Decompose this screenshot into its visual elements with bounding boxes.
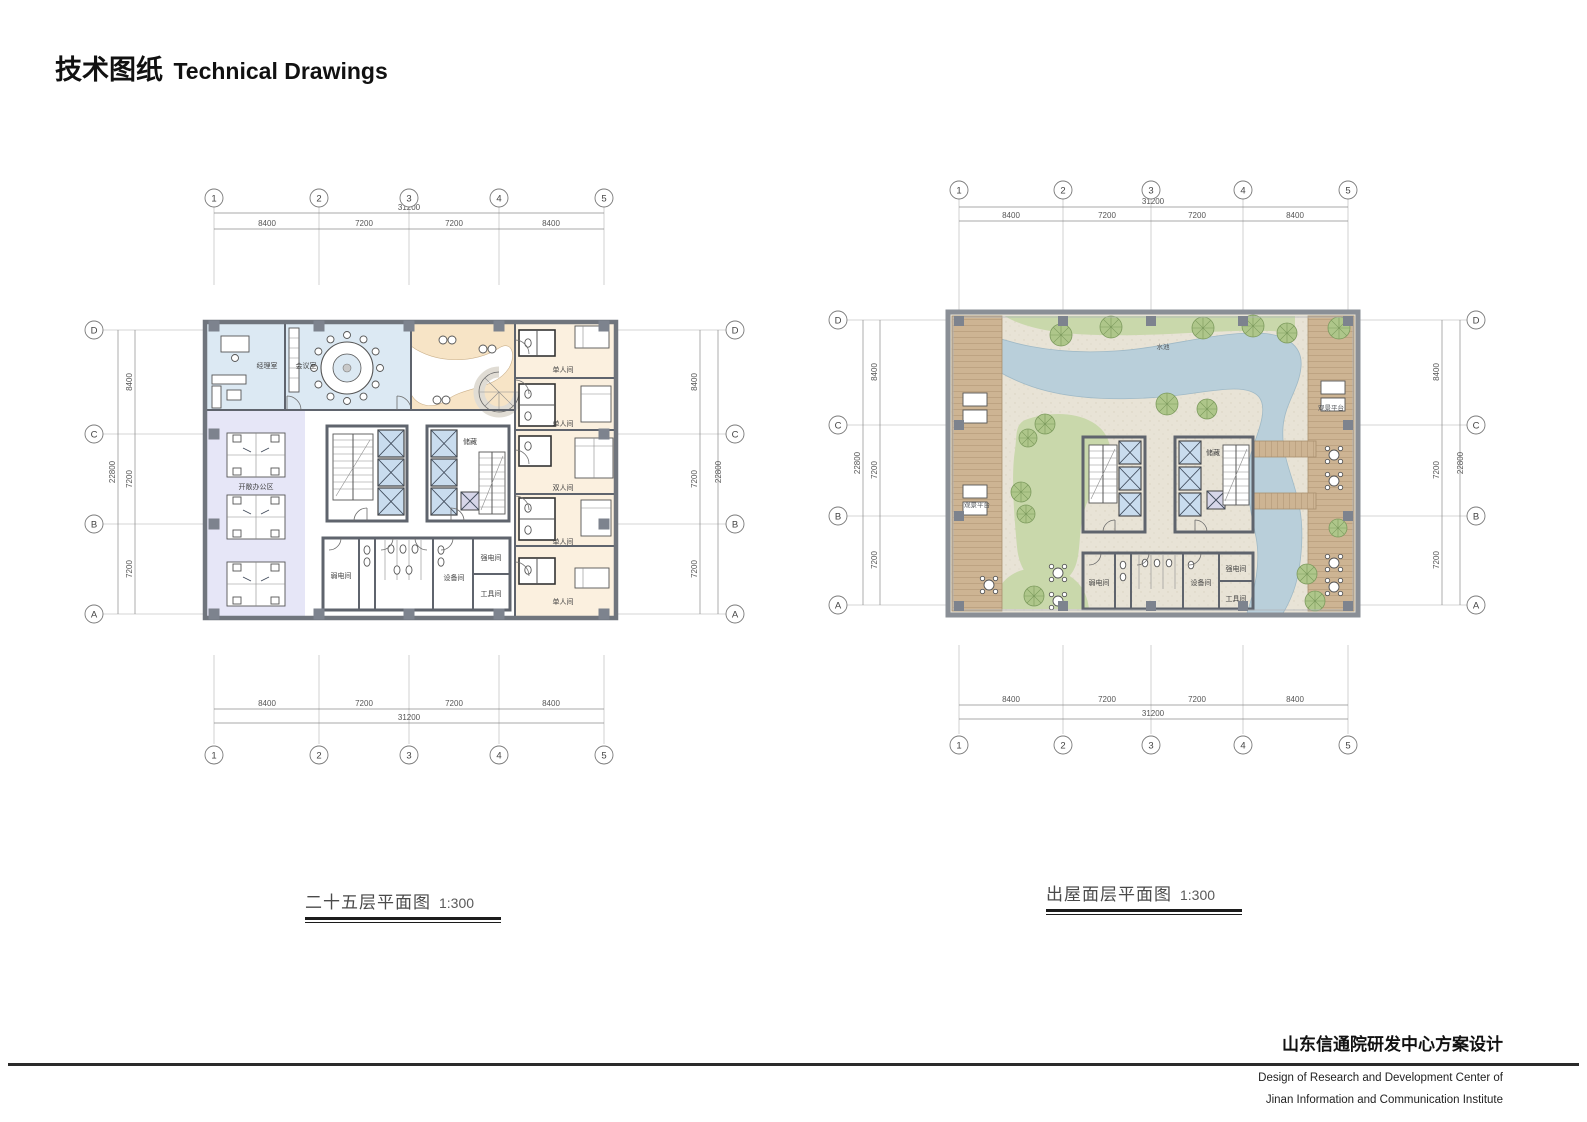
- svg-text:7200: 7200: [1432, 551, 1441, 569]
- label-tool: 工具间: [481, 590, 502, 598]
- workstation-cluster: [227, 495, 285, 539]
- svg-text:22800: 22800: [714, 460, 723, 483]
- svg-text:7200: 7200: [125, 470, 134, 488]
- svg-text:3: 3: [406, 194, 411, 205]
- svg-text:3: 3: [1148, 186, 1153, 197]
- roof-grid-top: 31200 8400 7200 7200 8400 1 2 3 4 5: [950, 181, 1357, 310]
- svg-text:8400: 8400: [1432, 363, 1441, 381]
- caption-underline: [305, 917, 501, 920]
- svg-text:4: 4: [1240, 186, 1245, 197]
- svg-text:2: 2: [1060, 741, 1065, 752]
- floor25-grid-top: 31200 8400 7200 7200 8400 1 2 3 4 5: [205, 189, 613, 285]
- svg-text:7200: 7200: [125, 560, 134, 578]
- svg-text:7200: 7200: [355, 699, 373, 708]
- caption-roof: 出屋面层平面图1:300: [1046, 880, 1242, 915]
- svg-text:C: C: [91, 430, 98, 441]
- svg-text:7200: 7200: [445, 219, 463, 228]
- svg-text:A: A: [1473, 601, 1480, 612]
- svg-text:3: 3: [1148, 741, 1153, 752]
- svg-text:D: D: [91, 326, 98, 337]
- svg-text:8400: 8400: [1002, 695, 1020, 704]
- label-manager: 经理室: [257, 361, 278, 370]
- caption-underline-thin: [1046, 914, 1242, 915]
- svg-text:7200: 7200: [445, 699, 463, 708]
- project-title-zh: 山东信通院研发中心方案设计: [1282, 1030, 1503, 1055]
- label-single-room: 单人间: [553, 365, 574, 374]
- svg-text:31200: 31200: [398, 713, 421, 722]
- svg-text:2: 2: [316, 751, 321, 762]
- label-roof-equipment: 设备间: [1191, 578, 1212, 587]
- svg-text:7200: 7200: [870, 551, 879, 569]
- svg-text:8400: 8400: [690, 373, 699, 391]
- elevator-icon: [1119, 441, 1141, 516]
- svg-text:5: 5: [601, 194, 606, 205]
- label-meeting: 会议室: [296, 361, 317, 370]
- svg-text:8400: 8400: [542, 219, 560, 228]
- svg-text:7200: 7200: [1188, 211, 1206, 220]
- label-deck-left: 观景平台: [964, 500, 990, 509]
- roof-grid-left: 22800 8400 7200 7200 D C B A: [829, 311, 948, 614]
- svg-text:1: 1: [211, 194, 216, 205]
- project-title-en-line2: Jinan Information and Communication Inst…: [1266, 1094, 1503, 1106]
- caption-roof-scale: 1:300: [1180, 887, 1215, 903]
- stair-icon: [333, 434, 373, 500]
- roof-plan: 31200 8400 7200 7200 8400 1 2 3 4 5 8400…: [815, 175, 1515, 770]
- page-title: 技术图纸 Technical Drawings: [55, 48, 388, 87]
- roof-grid-right: 8400 7200 7200 22800 D C B A: [1358, 311, 1485, 614]
- svg-text:A: A: [835, 601, 842, 612]
- elevator-icon: [1207, 491, 1225, 509]
- svg-text:5: 5: [1345, 186, 1350, 197]
- label-storage: 储藏: [463, 437, 477, 446]
- svg-text:8400: 8400: [1286, 211, 1304, 220]
- svg-text:C: C: [835, 421, 842, 432]
- drawing-sheet: 技术图纸 Technical Drawings 31200 8400 7200 …: [0, 0, 1587, 1122]
- svg-text:4: 4: [496, 751, 501, 762]
- svg-text:2: 2: [316, 194, 321, 205]
- project-title-en-line1: Design of Research and Development Cente…: [1258, 1072, 1503, 1084]
- caption-floor25-title: 二十五层平面图: [305, 893, 431, 912]
- svg-text:D: D: [732, 326, 739, 337]
- label-roof-weak-power: 弱电间: [1089, 578, 1110, 587]
- deck-left: [952, 316, 1002, 611]
- stair-icon: [479, 452, 505, 514]
- deck-bridge: [1252, 493, 1316, 509]
- svg-text:7200: 7200: [870, 461, 879, 479]
- svg-text:5: 5: [1345, 741, 1350, 752]
- elevator-icon: [461, 492, 479, 510]
- svg-text:8400: 8400: [542, 699, 560, 708]
- svg-text:22800: 22800: [1456, 451, 1465, 474]
- svg-text:A: A: [91, 610, 98, 621]
- svg-text:A: A: [732, 610, 739, 621]
- svg-text:2: 2: [1060, 186, 1065, 197]
- svg-text:1: 1: [956, 186, 961, 197]
- svg-text:5: 5: [601, 751, 606, 762]
- floor25-grid-bottom: 8400 7200 7200 8400 31200 1 2 3 4 5: [205, 655, 613, 764]
- svg-text:8400: 8400: [125, 373, 134, 391]
- label-single-room: 单人间: [553, 537, 574, 546]
- svg-text:7200: 7200: [1098, 211, 1116, 220]
- elevator-icon: [378, 430, 404, 515]
- elevator-icon: [1179, 441, 1201, 516]
- roof-grid-bottom: 8400 7200 7200 8400 31200 1 2 3 4 5: [950, 645, 1357, 754]
- caption-floor25-scale: 1:300: [439, 895, 474, 911]
- footer-rule: [8, 1063, 1579, 1066]
- svg-text:8400: 8400: [1002, 211, 1020, 220]
- svg-text:C: C: [1473, 421, 1480, 432]
- label-equipment: 设备间: [444, 573, 465, 582]
- svg-text:31200: 31200: [1142, 709, 1165, 718]
- label-open-office: 开敞办公区: [239, 482, 274, 491]
- svg-text:8400: 8400: [870, 363, 879, 381]
- deck-bridge: [1252, 441, 1316, 457]
- page-title-zh: 技术图纸: [55, 55, 163, 85]
- svg-text:7200: 7200: [1188, 695, 1206, 704]
- svg-text:8400: 8400: [258, 699, 276, 708]
- floor25-grid-left: 22800 8400 7200 7200 D C B A: [85, 321, 203, 623]
- label-water: 水池: [1157, 342, 1171, 351]
- caption-floor25: 二十五层平面图1:300: [305, 888, 501, 923]
- svg-text:7200: 7200: [1432, 461, 1441, 479]
- label-single-room: 单人间: [553, 597, 574, 606]
- svg-text:22800: 22800: [853, 451, 862, 474]
- svg-text:8400: 8400: [1286, 695, 1304, 704]
- svg-text:22800: 22800: [108, 460, 117, 483]
- svg-text:7200: 7200: [355, 219, 373, 228]
- stair-icon: [1089, 445, 1117, 503]
- stair-icon: [1223, 445, 1249, 505]
- svg-text:D: D: [835, 316, 842, 327]
- svg-text:4: 4: [496, 194, 501, 205]
- svg-text:7200: 7200: [690, 470, 699, 488]
- svg-text:D: D: [1473, 316, 1480, 327]
- floor25-grid-right: 8400 7200 7200 22800 D C B A: [618, 321, 744, 623]
- svg-text:8400: 8400: [258, 219, 276, 228]
- page-title-en: Technical Drawings: [173, 58, 387, 84]
- svg-text:B: B: [91, 520, 97, 531]
- label-deck-right: 观景平台: [1318, 403, 1344, 412]
- workstation-cluster: [227, 433, 285, 477]
- label-single-room: 单人间: [553, 419, 574, 428]
- svg-text:7200: 7200: [1098, 695, 1116, 704]
- svg-text:3: 3: [406, 751, 411, 762]
- floor25-plan: 31200 8400 7200 7200 8400 1 2 3 4 5 8400…: [75, 178, 775, 778]
- caption-underline-thin: [305, 922, 501, 923]
- svg-text:1: 1: [211, 751, 216, 762]
- svg-text:C: C: [732, 430, 739, 441]
- label-roof-strong-power: 强电间: [1226, 564, 1247, 573]
- svg-text:7200: 7200: [690, 560, 699, 578]
- svg-text:B: B: [1473, 512, 1479, 523]
- svg-text:B: B: [732, 520, 738, 531]
- label-roof-storage: 储藏: [1206, 448, 1220, 457]
- workstation-cluster: [227, 562, 285, 606]
- label-strong-power: 强电间: [481, 553, 502, 562]
- elevator-icon: [431, 430, 457, 515]
- label-weak-power: 弱电间: [331, 571, 352, 580]
- caption-roof-title: 出屋面层平面图: [1046, 885, 1172, 904]
- svg-text:4: 4: [1240, 741, 1245, 752]
- caption-underline: [1046, 909, 1242, 912]
- svg-text:1: 1: [956, 741, 961, 752]
- label-double-room: 双人间: [553, 484, 574, 492]
- svg-text:B: B: [835, 512, 841, 523]
